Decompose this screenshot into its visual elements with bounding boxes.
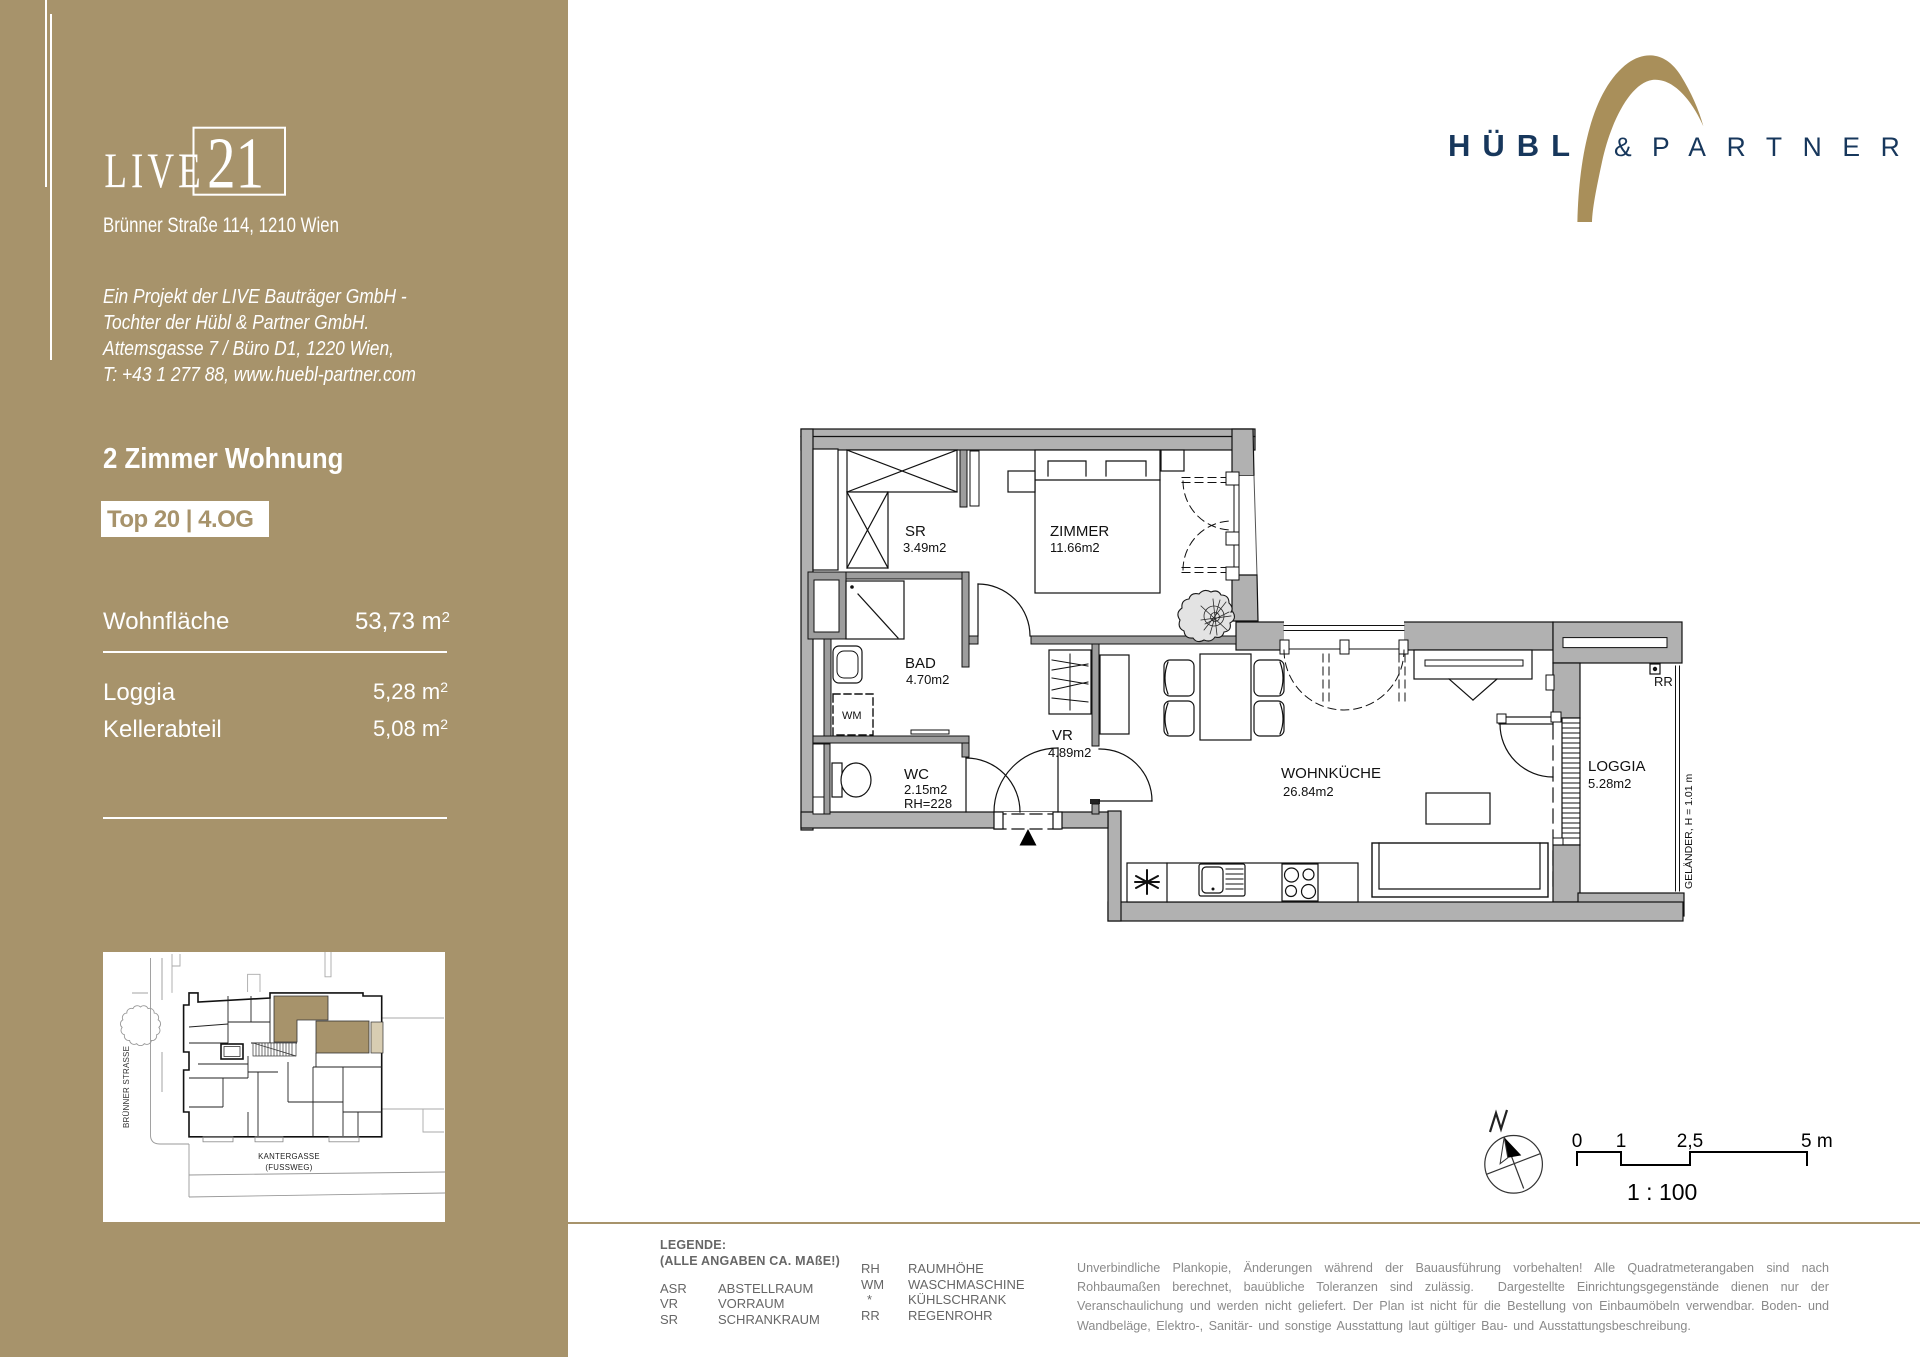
svg-text:5 m: 5 m bbox=[1801, 1131, 1833, 1152]
svg-text:21: 21 bbox=[207, 124, 264, 204]
svg-text:KANTERGASSE: KANTERGASSE bbox=[258, 1152, 320, 1161]
svg-text:1: 1 bbox=[1616, 1131, 1627, 1152]
svg-text:11.66m2: 11.66m2 bbox=[1050, 540, 1100, 555]
svg-text:PARTNER: PARTNER bbox=[1652, 132, 1920, 162]
svg-text:BRÜNNER STRASSE: BRÜNNER STRASSE bbox=[122, 1046, 131, 1128]
svg-text:WM: WM bbox=[842, 710, 862, 722]
svg-text:4.89m2: 4.89m2 bbox=[1048, 745, 1091, 760]
svg-text:HÜBL: HÜBL bbox=[1448, 128, 1582, 163]
svg-text:3.49m2: 3.49m2 bbox=[903, 540, 946, 555]
svg-text:SR: SR bbox=[905, 523, 926, 540]
svg-text:VR: VR bbox=[1052, 727, 1073, 744]
svg-text:26.84m2: 26.84m2 bbox=[1283, 784, 1334, 799]
svg-text:WOHNKÜCHE: WOHNKÜCHE bbox=[1281, 764, 1381, 782]
svg-text:GELÄNDER, H = 1.01 m: GELÄNDER, H = 1.01 m bbox=[1683, 773, 1695, 889]
svg-text:5.28m2: 5.28m2 bbox=[1588, 776, 1631, 791]
svg-text:4.70m2: 4.70m2 bbox=[906, 672, 949, 687]
svg-text:RR: RR bbox=[1654, 674, 1673, 689]
svg-text:RH=228: RH=228 bbox=[904, 796, 952, 811]
svg-text:2,5: 2,5 bbox=[1677, 1131, 1703, 1152]
svg-text:2.15m2: 2.15m2 bbox=[904, 782, 947, 797]
svg-text:LOGGIA: LOGGIA bbox=[1588, 758, 1646, 775]
svg-text:1 : 100: 1 : 100 bbox=[1627, 1179, 1697, 1205]
svg-text:&: & bbox=[1614, 132, 1632, 162]
svg-text:ZIMMER: ZIMMER bbox=[1050, 523, 1109, 540]
svg-text:LIVE: LIVE bbox=[104, 143, 205, 199]
svg-text:BAD: BAD bbox=[905, 655, 936, 672]
svg-text:0: 0 bbox=[1572, 1131, 1583, 1152]
svg-text:(FUSSWEG): (FUSSWEG) bbox=[265, 1163, 312, 1172]
svg-text:WC: WC bbox=[904, 766, 929, 783]
